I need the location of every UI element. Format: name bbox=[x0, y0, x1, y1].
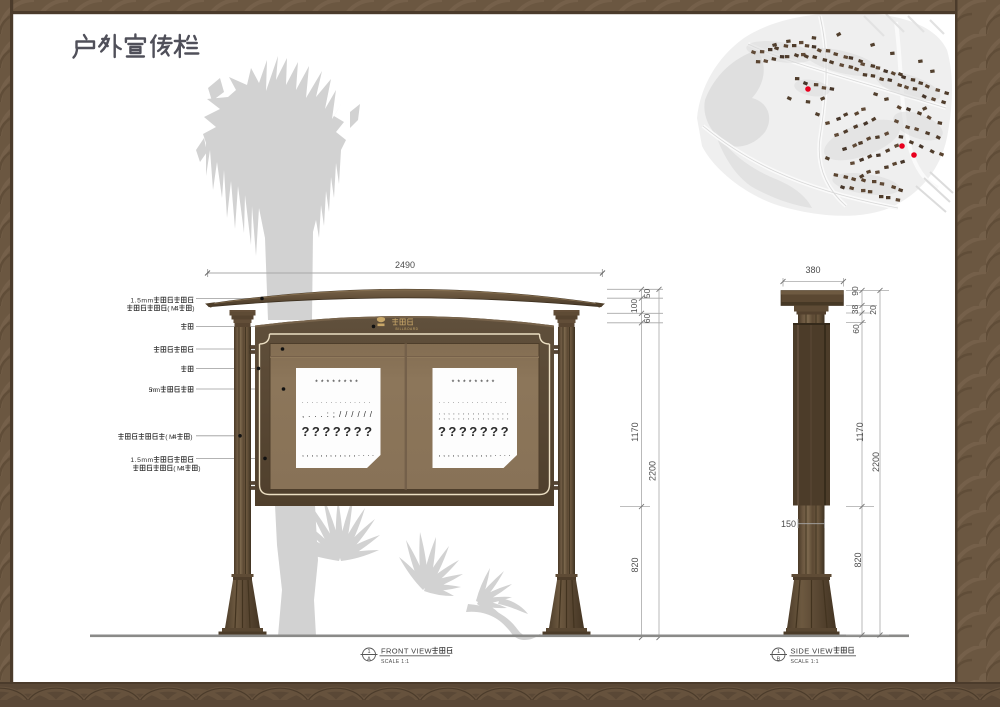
svg-text:5mm: 5mm bbox=[149, 387, 161, 394]
svg-text:2490: 2490 bbox=[395, 260, 415, 270]
svg-text:M4: M4 bbox=[169, 434, 177, 441]
svg-text:90: 90 bbox=[850, 286, 860, 296]
svg-text:60: 60 bbox=[851, 324, 861, 334]
svg-text:60: 60 bbox=[642, 314, 652, 324]
svg-text:380: 380 bbox=[805, 265, 820, 275]
svg-text:2200: 2200 bbox=[648, 461, 658, 481]
svg-text:???????: ??????? bbox=[438, 424, 511, 439]
svg-text:820: 820 bbox=[630, 557, 640, 572]
svg-text:********: ******** bbox=[452, 380, 498, 387]
svg-text:1170: 1170 bbox=[630, 422, 640, 441]
svg-text:1.5mm: 1.5mm bbox=[130, 298, 153, 305]
svg-text:): ) bbox=[192, 306, 194, 313]
svg-text:...............: ............... bbox=[439, 399, 507, 405]
svg-text:...............: ............... bbox=[302, 399, 370, 405]
svg-text:M4: M4 bbox=[171, 306, 179, 313]
svg-text:1: 1 bbox=[777, 649, 780, 655]
svg-text:BILLBOARD: BILLBOARD bbox=[395, 327, 418, 331]
svg-text:20: 20 bbox=[868, 305, 878, 315]
svg-text:1170: 1170 bbox=[855, 422, 865, 441]
svg-text:1.5mm: 1.5mm bbox=[130, 457, 153, 464]
svg-text:): ) bbox=[198, 466, 200, 473]
svg-text:A: A bbox=[367, 657, 371, 663]
svg-text:???????: ??????? bbox=[301, 424, 374, 439]
svg-text:FRONT VIEW: FRONT VIEW bbox=[381, 647, 432, 656]
svg-text:SIDE VIEW: SIDE VIEW bbox=[791, 647, 834, 656]
svg-text:100: 100 bbox=[629, 299, 639, 313]
svg-text:820: 820 bbox=[853, 552, 863, 567]
svg-text:1: 1 bbox=[367, 649, 370, 655]
svg-text:B: B bbox=[777, 657, 781, 663]
svg-text:SCALE 1:1: SCALE 1:1 bbox=[381, 659, 409, 665]
svg-text:SCALE 1:1: SCALE 1:1 bbox=[791, 659, 819, 665]
svg-text:2200: 2200 bbox=[871, 452, 881, 472]
svg-text:): ) bbox=[190, 434, 192, 441]
svg-text:50: 50 bbox=[642, 289, 652, 299]
svg-text:********: ******** bbox=[315, 380, 361, 387]
svg-text:38: 38 bbox=[850, 305, 860, 315]
svg-text:M4: M4 bbox=[177, 466, 185, 473]
svg-text:,,,,,,,,,,,,,,,: ,,,,,,,,,,,,,,, bbox=[439, 415, 509, 421]
svg-text:150: 150 bbox=[781, 519, 796, 529]
